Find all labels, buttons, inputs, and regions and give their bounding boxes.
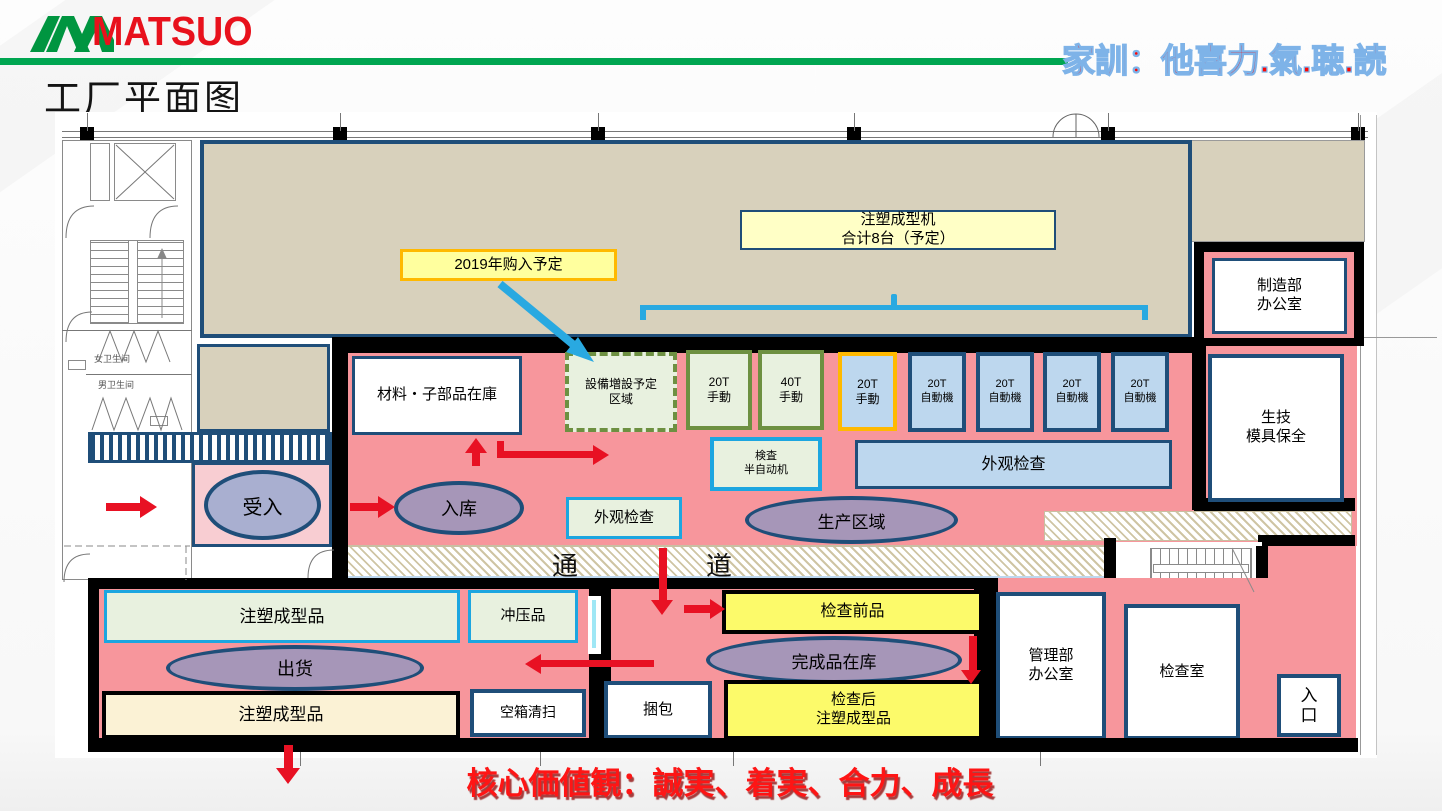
machine-label: 20T: [1063, 378, 1082, 392]
room-material-stock: 材料・子部品在庫: [352, 356, 522, 435]
machine-label: 20T: [996, 378, 1015, 392]
machine-label: 自動機: [1056, 392, 1089, 406]
entrance-line1: 入: [1301, 686, 1318, 706]
storage-molded-bottom: 注塑成型品: [102, 691, 460, 739]
right-wing-floor-upper: [1268, 546, 1356, 606]
purchase-plan-label: 2019年购入予定: [400, 249, 617, 281]
span-bracket-cap: [640, 305, 646, 320]
machine-20t-auto: 20T 自動機: [1111, 352, 1169, 432]
zone-finished-goods: 完成品在库: [706, 636, 962, 684]
span-bracket-tick: [891, 294, 897, 307]
grid-stub: [598, 113, 599, 131]
storage-empty-box: 空箱清扫: [470, 689, 586, 737]
room-mfg-office: 制造部 办公室: [1212, 258, 1347, 334]
toilet-male-label: 男卫生间: [98, 378, 134, 391]
room-inspection: 检查室: [1124, 604, 1240, 740]
visual-inspection-label: 外观检查: [594, 509, 654, 528]
post-inspection-line1: 检查后: [831, 691, 876, 710]
zone-finished-goods-label: 完成品在库: [792, 648, 877, 673]
purchase-plan-text: 2019年购入予定: [454, 256, 562, 275]
zone-production: 生产区域: [745, 496, 958, 544]
zone-shipping: 出货: [166, 645, 424, 691]
machine-hall-extension: [1192, 140, 1365, 242]
admin-office-line1: 管理部: [1028, 647, 1073, 666]
expansion-line1: 設備増設予定: [585, 377, 657, 392]
grid-line: [62, 137, 1368, 138]
exterior-tick: [1362, 337, 1437, 338]
grid-stub: [340, 113, 341, 131]
expansion-area: 設備増設予定 区域: [565, 352, 677, 432]
toilet-female-label: 女卫生间: [94, 352, 130, 365]
room-entrance: 入 口: [1277, 674, 1341, 737]
family-motto: 家訓：他喜力.氣.聴.読: [1062, 34, 1442, 82]
injection-machine-label-line1: 注塑成型机: [860, 211, 935, 230]
fixture-box: [68, 360, 86, 370]
machine-20t-auto: 20T 自動機: [976, 352, 1034, 432]
packing-label: 捆包: [643, 701, 673, 720]
zone-production-label: 生产区域: [818, 508, 886, 533]
logo-wordmark: MATSUO: [92, 8, 253, 55]
machine-label: 手動: [855, 392, 879, 407]
hall-side-room: [197, 344, 330, 432]
visual-inspection-small: 外观检查: [566, 497, 682, 539]
core-values-banner: 核心価値観：誠実、着実、合力、成長: [360, 758, 1100, 803]
machine-40t-manual: 40T 手動: [758, 350, 824, 430]
post-inspection-line2: 注塑成型品: [816, 710, 891, 729]
admin-office-line2: 办公室: [1028, 666, 1073, 685]
storage-molded-top: 注塑成型品: [104, 590, 460, 643]
empty-box-label: 空箱清扫: [500, 704, 556, 722]
expansion-line2: 区域: [609, 392, 633, 407]
header-divider: [0, 58, 1068, 65]
entrance-line2: 口: [1301, 706, 1318, 726]
machine-label: 自動機: [921, 392, 954, 406]
elevator-icon: [114, 143, 176, 201]
molded-top-label: 注塑成型品: [240, 606, 325, 627]
machine-label: 自動機: [989, 392, 1022, 406]
grid-stub: [1358, 113, 1359, 131]
divider-line: [86, 374, 192, 375]
machine-label: 40T: [781, 375, 802, 390]
machine-label: 20T: [928, 378, 947, 392]
machine-label: 自動機: [1124, 392, 1157, 406]
zone-shipping-label: 出货: [277, 655, 313, 681]
fixture-box: [150, 416, 168, 426]
room-tech-mold: 生技 模具保全: [1208, 354, 1344, 502]
storage-pre-inspection: 检查前品: [722, 590, 983, 634]
stair-handrail: [128, 240, 138, 324]
wall: [88, 738, 1358, 752]
mfg-office-line1: 制造部: [1257, 277, 1302, 296]
grid-stub: [854, 113, 855, 131]
injection-machine-label-line2: 合计8台（予定）: [841, 230, 954, 249]
machine-label: 20T: [1131, 378, 1150, 392]
stamped-label: 冲压品: [500, 607, 545, 626]
wall: [1192, 346, 1206, 510]
zone-receiving: 受入: [204, 470, 321, 540]
zone-inbound-label: 入库: [441, 495, 477, 521]
inspection-room-label: 检查室: [1159, 663, 1204, 682]
storage-post-inspection: 检查后 注塑成型品: [724, 680, 983, 740]
injection-machine-label: 注塑成型机 合计8台（予定）: [740, 210, 1056, 250]
visual-inspection-large: 外观检查: [855, 440, 1172, 489]
grid-stub: [87, 113, 88, 131]
visual-inspection-label: 外观检查: [981, 455, 1045, 475]
tech-mold-line1: 生技: [1261, 409, 1291, 428]
storage-packing: 捆包: [604, 681, 712, 739]
dock-shutter: [88, 432, 332, 463]
semi-auto-line2: 半自动机: [744, 464, 788, 478]
storage-stamped: 冲压品: [468, 590, 578, 643]
molded-bottom-label: 注塑成型品: [239, 704, 324, 725]
zone-inbound: 入库: [394, 481, 524, 535]
zone-receiving-label: 受入: [243, 491, 283, 520]
wall: [1258, 535, 1355, 546]
machine-label: 20T: [709, 375, 730, 390]
elevator-shaft: [90, 143, 110, 201]
machine-label: 手動: [779, 390, 803, 405]
machine-label: 20T: [857, 377, 878, 392]
stair-handrail: [1153, 564, 1249, 573]
material-stock-label: 材料・子部品在庫: [377, 386, 497, 405]
span-bracket-cap: [1142, 305, 1148, 320]
exterior-line: [1376, 115, 1377, 755]
pre-inspection-label: 检查前品: [820, 602, 884, 622]
semi-auto-line1: 検査: [755, 450, 777, 464]
machine-20t-auto: 20T 自動機: [908, 352, 966, 432]
machine-20t-manual: 20T 手動: [686, 350, 752, 430]
inspection-semi-auto: 検査 半自动机: [710, 437, 822, 491]
machine-20t-manual-orange: 20T 手動: [838, 352, 897, 431]
grid-stub: [1108, 113, 1109, 131]
room-admin-office: 管理部 办公室: [996, 592, 1106, 740]
tech-mold-line2: 模具保全: [1246, 428, 1306, 447]
machine-20t-auto: 20T 自動機: [1043, 352, 1101, 432]
grid-line: [62, 131, 1368, 132]
door-gap-line: [592, 600, 596, 648]
mfg-office-line2: 办公室: [1257, 296, 1302, 315]
machine-label: 手動: [707, 390, 731, 405]
wall: [332, 337, 348, 580]
divider-line: [62, 330, 192, 331]
grid-tick: [300, 752, 301, 766]
